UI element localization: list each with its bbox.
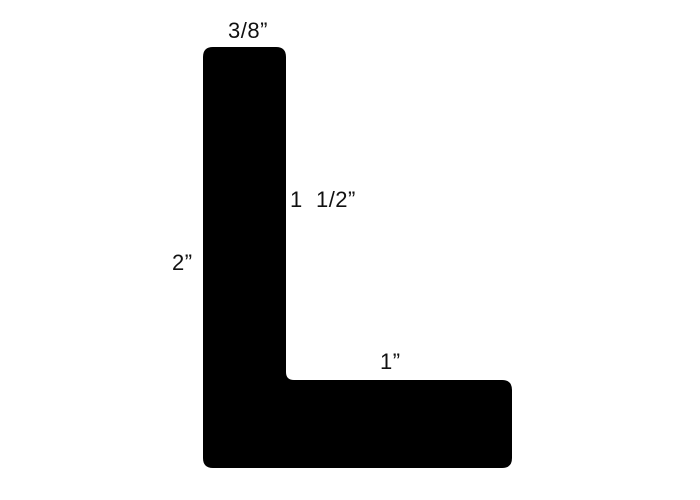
dimension-label-left-height: 2”: [172, 252, 193, 274]
dimension-label-top-width: 3/8”: [228, 20, 268, 42]
l-profile-drawing: [0, 0, 700, 500]
dimension-label-inner-height: 1 1/2”: [290, 189, 356, 211]
l-shape: [203, 47, 512, 468]
dimension-label-bottom-width: 1”: [380, 351, 401, 373]
diagram-canvas: 3/8” 1 1/2” 2” 1”: [0, 0, 700, 500]
